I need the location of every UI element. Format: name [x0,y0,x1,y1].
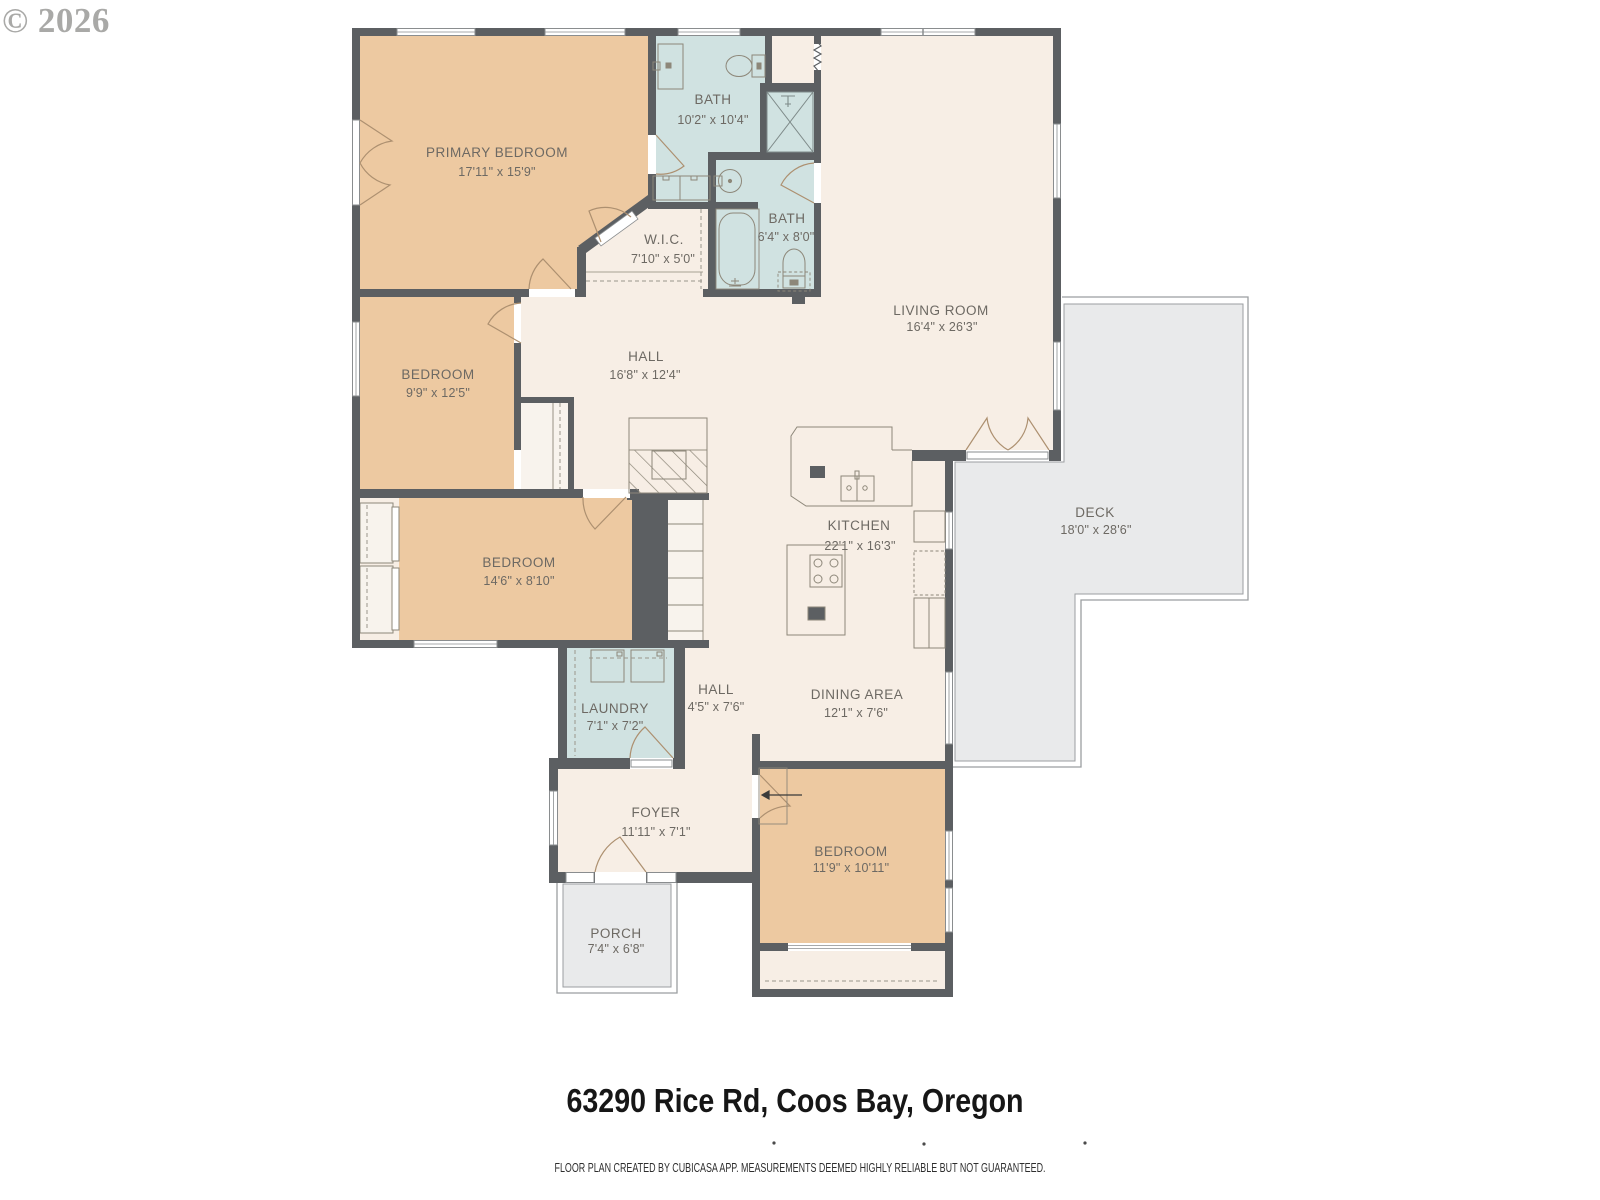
svg-text:FLOOR PLAN CREATED BY CUBICASA: FLOOR PLAN CREATED BY CUBICASA APP. MEAS… [555,1160,1046,1175]
svg-text:BATH: BATH [694,92,731,107]
svg-text:BEDROOM: BEDROOM [401,367,474,382]
svg-text:W.I.C.: W.I.C. [644,232,684,247]
svg-text:9'9" x 12'5": 9'9" x 12'5" [406,386,470,400]
svg-text:6'4" x 8'0": 6'4" x 8'0" [758,230,815,244]
svg-text:KITCHEN: KITCHEN [828,518,891,533]
svg-text:LIVING ROOM: LIVING ROOM [893,303,989,318]
svg-text:16'4" x 26'3": 16'4" x 26'3" [906,320,977,334]
svg-text:DECK: DECK [1075,505,1115,520]
svg-text:FOYER: FOYER [631,805,680,820]
svg-text:11'11" x 7'1": 11'11" x 7'1" [621,825,690,839]
svg-text:© 2026: © 2026 [2,1,110,40]
svg-text:7'1" x 7'2": 7'1" x 7'2" [587,719,644,733]
svg-text:HALL: HALL [628,349,664,364]
svg-text:BEDROOM: BEDROOM [814,844,887,859]
svg-text:11'9" x 10'11": 11'9" x 10'11" [813,861,889,875]
svg-text:18'0" x 28'6": 18'0" x 28'6" [1060,523,1131,537]
svg-text:7'4" x 6'8": 7'4" x 6'8" [588,942,645,956]
svg-text:17'11" x 15'9": 17'11" x 15'9" [458,165,535,179]
svg-text:22'1" x 16'3": 22'1" x 16'3" [824,539,895,553]
svg-text:PORCH: PORCH [590,926,641,941]
svg-text:BATH: BATH [768,211,805,226]
svg-text:10'2" x 10'4": 10'2" x 10'4" [677,113,748,127]
svg-text:HALL: HALL [698,682,734,697]
svg-text:BEDROOM: BEDROOM [482,555,555,570]
svg-text:4'5" x 7'6": 4'5" x 7'6" [688,700,745,714]
svg-text:LAUNDRY: LAUNDRY [581,701,649,716]
svg-text:16'8" x 12'4": 16'8" x 12'4" [609,368,680,382]
svg-text:12'1" x 7'6": 12'1" x 7'6" [824,706,888,720]
svg-text:63290 Rice Rd, Coos Bay, Orego: 63290 Rice Rd, Coos Bay, Oregon [567,1082,1024,1119]
svg-text:DINING AREA: DINING AREA [811,687,904,702]
svg-text:PRIMARY BEDROOM: PRIMARY BEDROOM [426,145,568,160]
svg-text:7'10" x 5'0": 7'10" x 5'0" [631,252,695,266]
svg-text:14'6" x 8'10": 14'6" x 8'10" [483,574,554,588]
